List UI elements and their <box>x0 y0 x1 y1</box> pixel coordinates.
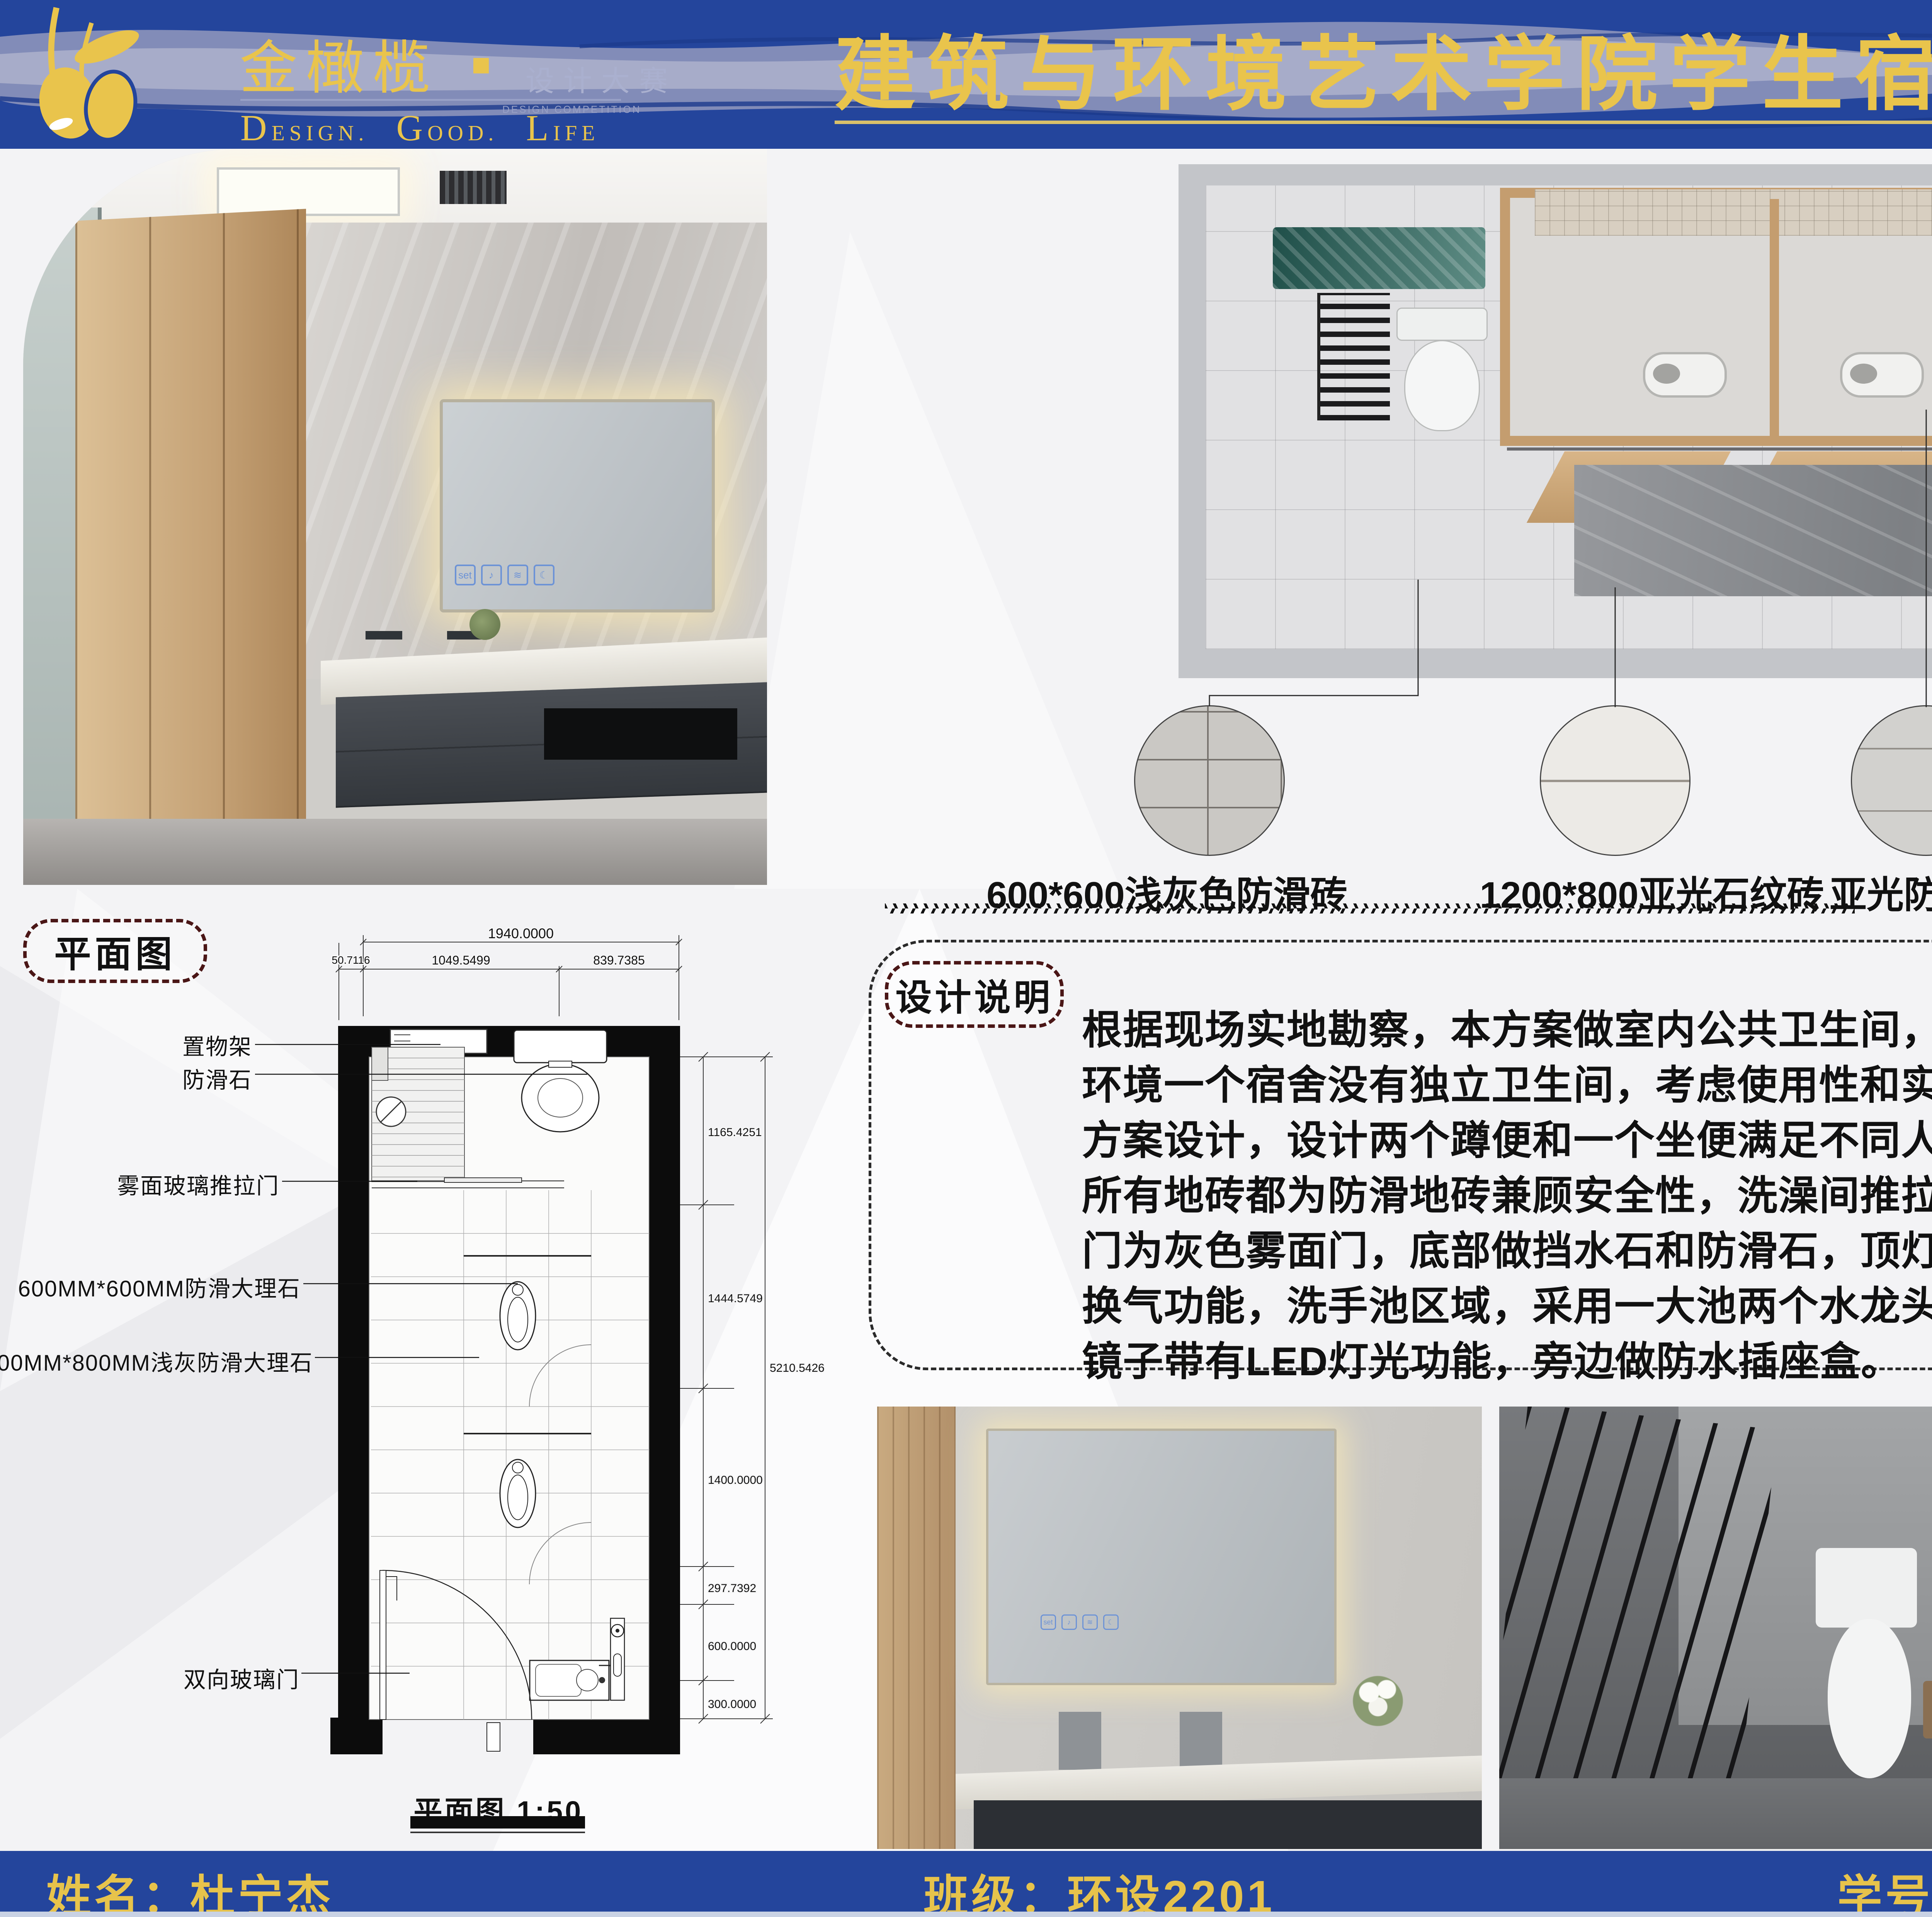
poster: 金橄榄 设计大赛 DESIGN COMPETITION DESIGN. GOOD… <box>0 0 1932 1917</box>
dim-seg: 1049.5499 <box>432 953 490 967</box>
tagline-word: G <box>396 110 428 146</box>
tagline-word: L <box>526 110 553 146</box>
description-tag: 设计说明 <box>885 961 1064 1028</box>
brand-dot <box>473 58 489 73</box>
dim-seg: 839.7385 <box>593 953 645 967</box>
dim-right-total: 5210.5426 <box>770 1362 825 1374</box>
wall-faucet <box>366 631 402 640</box>
footer-name: 姓名：杜宁杰 <box>46 1860 334 1917</box>
plan-label-marble600: 600MM*600MM防滑大理石 <box>18 1271 301 1303</box>
plan-caption-bar <box>410 1816 585 1829</box>
mirror-set-button: set <box>1041 1614 1056 1630</box>
floor-plan-tag-label: 平面图 <box>54 925 176 978</box>
plan-dim-lines <box>336 935 682 1020</box>
render-vanity-closeup: set ♪ ≋ ☾ <box>877 1407 1482 1849</box>
description-line: 所有地砖都为防滑地砖兼顾安全性，洗澡间推拉门设计， <box>1082 1163 1932 1221</box>
description-line: 门为灰色雾面门，底部做挡水石和防滑石，顶灯有1通风 <box>1082 1218 1932 1276</box>
plan-label-sliding-door: 雾面玻璃推拉门 <box>117 1168 279 1200</box>
tagline-word: OOD. <box>427 122 498 144</box>
render-bathroom-perspective: set ♪ ≋ ☾ <box>23 149 767 885</box>
squat-toilet <box>1643 352 1727 398</box>
dim-right: 300.0000 <box>708 1698 756 1711</box>
plan-shower <box>372 1047 464 1182</box>
description-line: 根据现场实地勘察，本方案做室内公共卫生间，考虑现场 <box>1082 997 1932 1055</box>
render-floor <box>1499 1778 1932 1849</box>
material-swatch-stone1200 <box>1540 705 1690 856</box>
description-line: 方案设计，设计两个蹲便和一个坐便满足不同人群需求， <box>1082 1107 1932 1166</box>
footer-class: 班级：环设2201 <box>923 1860 1275 1917</box>
footer-strip <box>0 1912 1932 1917</box>
material-swatch-tile600 <box>1134 705 1285 856</box>
brand-subtitle: 设计大赛 <box>526 58 677 99</box>
gray-marble-floor <box>1574 465 1932 596</box>
door-rail <box>1507 447 1932 451</box>
flower-decor <box>1349 1672 1407 1730</box>
mirror-light-icon: ☾ <box>1103 1614 1119 1630</box>
plan-label-antislip: 防滑石 <box>182 1062 252 1094</box>
plan-label-double-door: 双向玻璃门 <box>184 1662 299 1694</box>
wood-stool <box>1923 1681 1932 1738</box>
description-line: 换气功能，洗手池区域，采用一大池两个水龙头节约空间 <box>1082 1273 1932 1332</box>
dim-seg: 50.7116 <box>332 954 370 966</box>
description-line: 环境一个宿舍没有独立卫生间，考虑使用性和实用性做本 <box>1082 1052 1932 1111</box>
mirror-touch-controls: set ♪ ≋ ☾ <box>1041 1614 1119 1630</box>
floor-plan-drawing: 1940.0000 50.7116 1049.5499 839.7385 <box>317 920 838 1847</box>
brand-name: 金橄榄 <box>240 21 439 105</box>
render-toilet-room <box>1499 1407 1932 1849</box>
tagline-word: IFE <box>553 122 599 144</box>
footer-bar: 姓名：杜宁杰 班级：环设2201 学号：202240020 <box>0 1851 1932 1917</box>
floor-plan-tag: 平面图 <box>23 919 207 983</box>
toilet-bowl-topview <box>1404 340 1480 431</box>
zigzag-divider <box>885 908 1855 913</box>
toilet-tank <box>1816 1548 1917 1628</box>
wood-stall-partitions <box>75 209 306 847</box>
olive-logo-icon <box>10 2 172 147</box>
vanity-cabinet <box>974 1800 1482 1849</box>
dim-right: 600.0000 <box>708 1640 756 1653</box>
dim-right: 1400.0000 <box>708 1474 763 1487</box>
tagline-word: D <box>240 110 272 146</box>
plan-label-marble1200: 1200MM*800MM浅灰防滑大理石 <box>0 1345 313 1377</box>
dim-right: 1444.5749 <box>708 1292 763 1305</box>
plan-caption-line <box>410 1832 585 1833</box>
render-bathroom-topview <box>1179 164 1932 678</box>
wall-faucet <box>1059 1712 1101 1770</box>
plan-toilet <box>514 1030 607 1132</box>
open-drawer <box>544 708 738 760</box>
mirror-defog-icon: ≋ <box>1082 1614 1098 1630</box>
brand-tagline: DESIGN. GOOD. LIFE <box>240 110 599 146</box>
plan-right-dims <box>680 1052 773 1723</box>
ceiling-vent <box>440 171 507 204</box>
mirror-touch-controls: set ♪ ≋ ☾ <box>455 565 554 585</box>
led-mirror <box>986 1429 1337 1685</box>
description-tag-label: 设计说明 <box>895 968 1053 1021</box>
ceiling-light-panel <box>217 167 400 216</box>
dim-right: 1165.4251 <box>708 1126 762 1139</box>
dim-right: 297.7392 <box>708 1582 756 1595</box>
mosaic-band <box>1535 189 1932 236</box>
plant-decor <box>469 609 500 640</box>
radiator-topview <box>1317 293 1390 420</box>
render-floor <box>23 819 767 885</box>
wood-edge-panel <box>877 1407 956 1849</box>
plan-washbasin <box>530 1660 609 1700</box>
brand-divider <box>240 99 621 101</box>
teal-ceiling-feature <box>1273 227 1485 289</box>
page-title: 建筑与环境艺术学院学生宿舍卫生间设计大赛 <box>827 9 1932 126</box>
header-bar: 金橄榄 设计大赛 DESIGN COMPETITION DESIGN. GOOD… <box>0 0 1932 149</box>
wall-faucet <box>1180 1712 1222 1770</box>
toilet-bowl <box>1828 1619 1911 1778</box>
mirror-light-icon: ☾ <box>534 565 554 585</box>
footer-student-id: 学号：202240020 <box>1837 1860 1932 1917</box>
toilet-tank-topview <box>1396 308 1488 341</box>
tagline-word: ESIGN. <box>272 122 369 144</box>
mirror-music-icon: ♪ <box>481 565 502 585</box>
squat-toilet <box>1840 352 1924 398</box>
title-underline <box>835 121 1932 124</box>
mirror-defog-icon: ≋ <box>507 565 528 585</box>
stall-divider <box>1770 199 1779 439</box>
mirror-music-icon: ♪ <box>1061 1614 1077 1630</box>
zigzag-divider <box>885 903 1855 908</box>
dim-total-width: 1940.0000 <box>488 925 554 941</box>
plan-label-shelf: 置物架 <box>182 1029 252 1061</box>
mirror-set-button: set <box>455 565 476 585</box>
description-line: 镜子带有LED灯光功能，旁边做防水插座盒。 <box>1082 1328 1902 1387</box>
